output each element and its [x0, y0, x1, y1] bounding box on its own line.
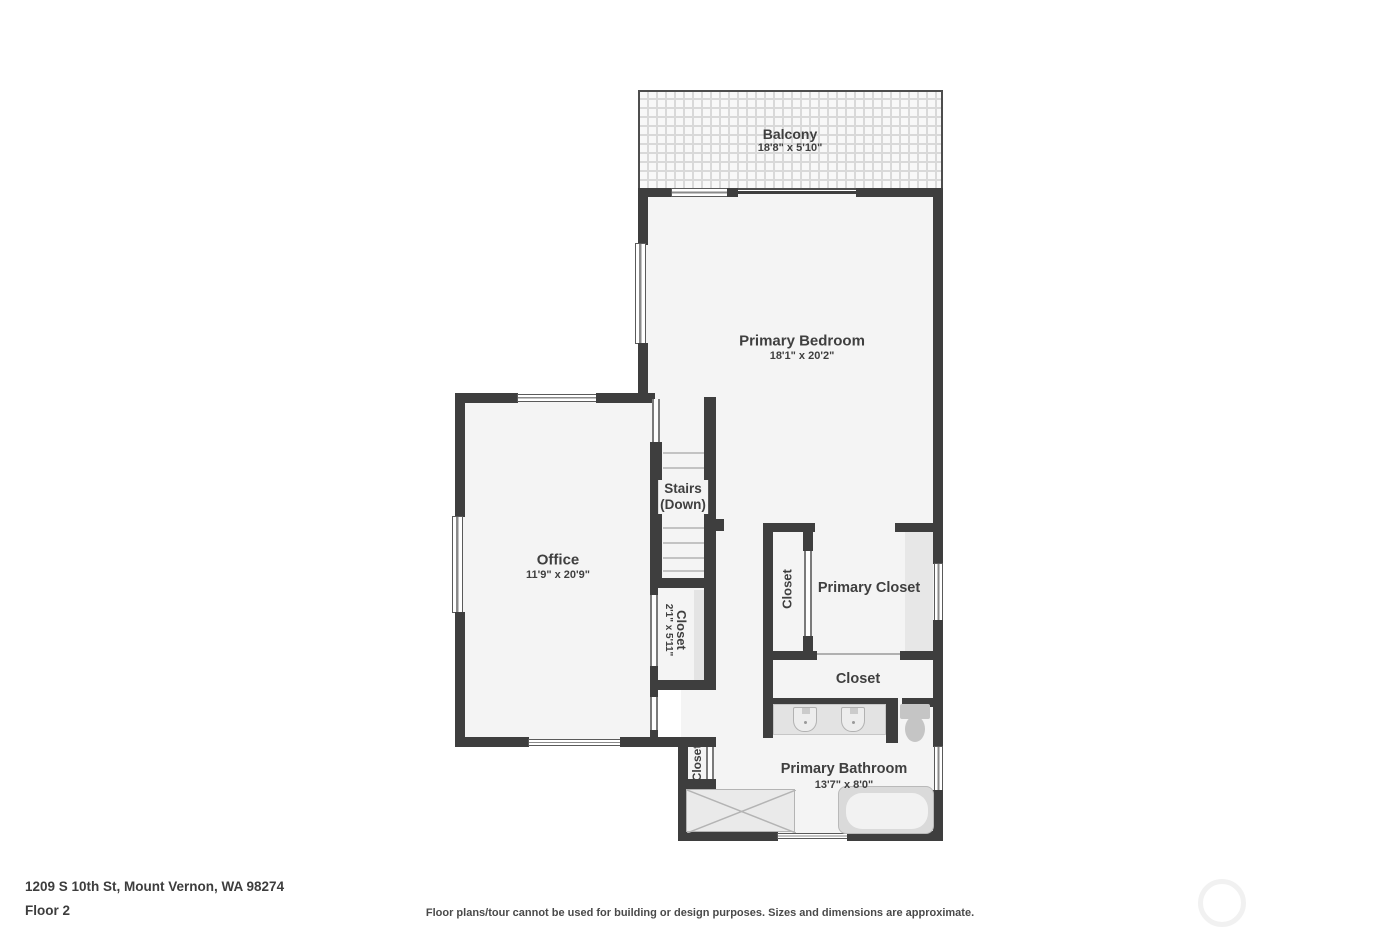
window	[671, 188, 728, 197]
sink-icon	[793, 707, 817, 732]
wall-segment	[704, 737, 716, 747]
room-label-primary-bathroom: Primary Bathroom	[781, 761, 908, 777]
shower-icon	[686, 789, 795, 832]
room-label-stairs: Stairs (Down)	[658, 480, 708, 514]
wall-segment	[638, 188, 648, 245]
sliding-door	[804, 551, 812, 636]
wall-segment	[650, 680, 716, 690]
wall-segment	[638, 343, 648, 398]
wall-segment	[650, 690, 658, 697]
bathtub-icon	[838, 786, 934, 834]
closet-shading	[694, 590, 704, 680]
room-dims-office: 11'9" x 20'9"	[526, 569, 590, 581]
door-jamb	[716, 519, 724, 531]
window	[934, 563, 943, 621]
toilet-bowl-icon	[905, 716, 925, 742]
room-dims-primary-bathroom: 13'7" x 8'0"	[815, 779, 873, 791]
room-label-office: Office	[537, 552, 580, 569]
room-label-primary-closet: Primary Closet	[818, 580, 920, 596]
wall-segment	[933, 620, 943, 747]
wall-segment	[704, 588, 716, 683]
window	[452, 516, 463, 613]
room-label-bathroom-closet: Closet	[690, 745, 704, 782]
watermark-logo-icon	[1198, 879, 1246, 927]
wall-segment	[620, 737, 686, 747]
wall-segment	[650, 666, 658, 680]
vanity-counter	[773, 704, 886, 735]
wall-segment	[455, 612, 465, 747]
door-opening	[650, 697, 658, 730]
sliding-door-track	[737, 191, 857, 194]
room-label-suite-closet: Closet	[780, 569, 795, 609]
door-opening	[817, 653, 900, 655]
window	[517, 394, 597, 402]
wall-segment	[763, 651, 817, 660]
stair-opening-rail	[652, 399, 660, 444]
address-text: 1209 S 10th St, Mount Vernon, WA 98274	[25, 879, 284, 894]
room-dims-primary-bedroom: 18'1" x 20'2"	[770, 350, 835, 362]
wall-segment	[455, 737, 529, 747]
room-label-stairs-closet: Closet 2'1" x 5'11"	[663, 604, 689, 657]
room-label-primary-bedroom: Primary Bedroom	[739, 333, 865, 350]
wall-segment	[650, 588, 658, 595]
wall-segment	[596, 393, 655, 403]
wall-segment	[803, 523, 813, 551]
sink-icon	[841, 707, 865, 732]
disclaimer-text: Floor plans/tour cannot be used for buil…	[426, 907, 974, 919]
floor-label: Floor 2	[25, 903, 70, 918]
floor-plan-page: Balcony 18'8" x 5'10" Primary Bedroom 18…	[0, 0, 1400, 933]
window	[528, 739, 621, 746]
wall-segment	[895, 523, 938, 532]
wall-segment	[933, 188, 943, 564]
room-dims-balcony: 18'8" x 5'10"	[758, 142, 823, 154]
window	[777, 833, 849, 839]
window	[934, 746, 943, 791]
room-label-balcony: Balcony	[763, 126, 817, 142]
window	[635, 243, 646, 344]
wall-segment	[650, 730, 658, 738]
room-label-closet-row: Closet	[836, 671, 880, 687]
wall-segment	[886, 698, 898, 743]
hallway-floor	[713, 397, 768, 740]
door-opening	[650, 595, 658, 666]
wall-segment	[650, 578, 716, 588]
door-opening	[706, 747, 714, 779]
wall-segment	[455, 393, 465, 517]
wall-segment	[856, 188, 943, 197]
wall-segment	[650, 442, 662, 588]
